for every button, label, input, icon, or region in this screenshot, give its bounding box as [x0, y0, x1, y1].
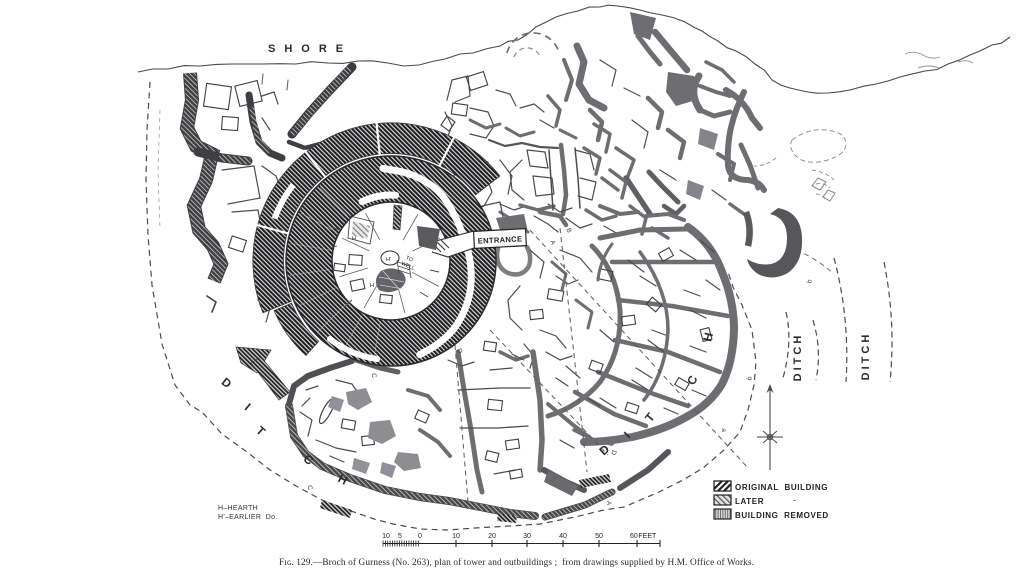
svg-text:60 FEET: 60 FEET — [630, 533, 657, 540]
svg-text:BUILDING REMOVED: BUILDING REMOVED — [735, 511, 829, 520]
svg-text:20: 20 — [488, 533, 496, 540]
svg-text:H: H — [370, 283, 374, 289]
svg-text:SHORE: SHORE — [268, 43, 352, 55]
svg-text:ORIGINAL BUILDING: ORIGINAL BUILDING — [735, 483, 828, 492]
svg-text:40: 40 — [559, 533, 567, 540]
svg-text:50: 50 — [595, 533, 603, 540]
svg-text:-: - — [793, 495, 796, 505]
svg-text:H': H' — [386, 257, 391, 263]
svg-text:Hʹ–EARLIER Do.: Hʹ–EARLIER Do. — [218, 513, 278, 521]
svg-text:H: H — [352, 236, 356, 242]
svg-text:10: 10 — [452, 533, 460, 540]
svg-text:H–HEARTH: H–HEARTH — [218, 505, 258, 512]
svg-text:0: 0 — [418, 533, 422, 540]
svg-text:A: A — [605, 501, 612, 506]
svg-text:LATER: LATER — [735, 497, 764, 506]
svg-text:a: a — [720, 428, 727, 432]
svg-text:30: 30 — [523, 533, 531, 540]
svg-text:5: 5 — [398, 533, 402, 540]
svg-text:Fɪɢ. 129.—Broch of Gurness (No: Fɪɢ. 129.—Broch of Gurness (No. 263), pl… — [279, 557, 754, 568]
svg-text:DITCH: DITCH — [860, 332, 872, 381]
svg-text:DITCH: DITCH — [792, 333, 804, 382]
svg-text:10: 10 — [382, 533, 390, 540]
